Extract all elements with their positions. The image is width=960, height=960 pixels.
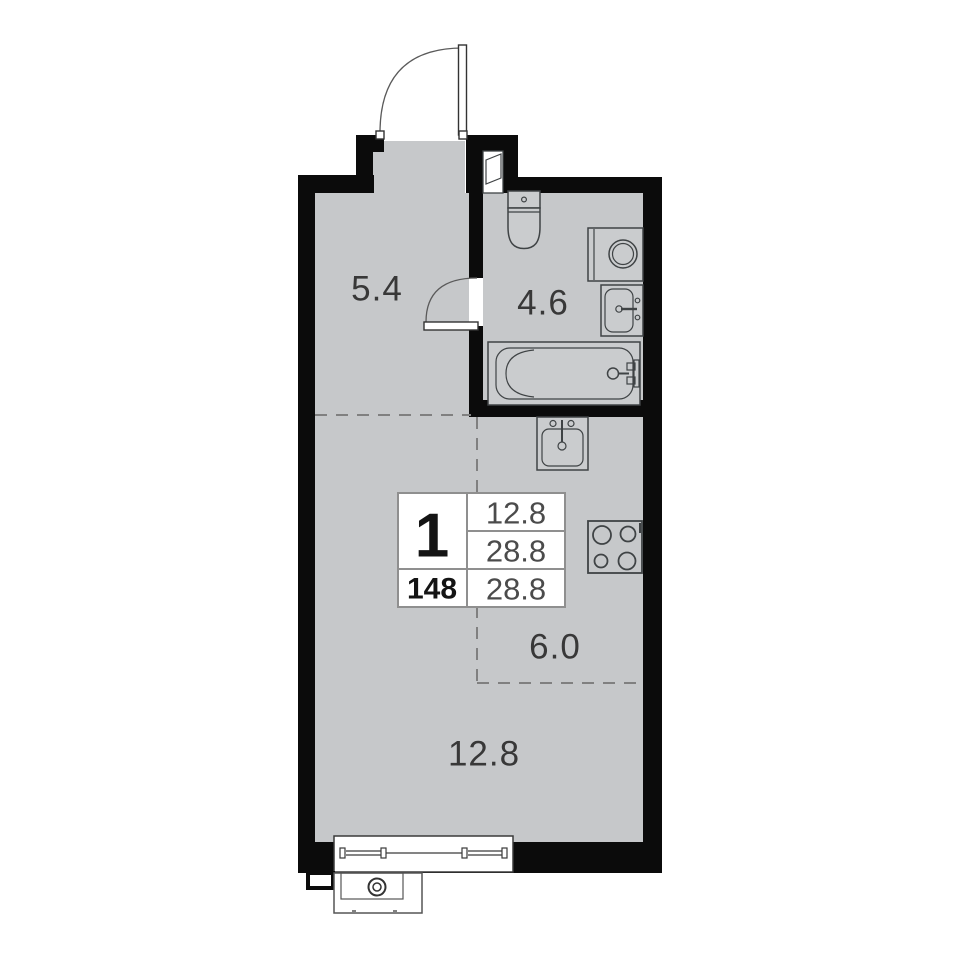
wall-bathroom-left-upper [469, 193, 483, 278]
washing-machine-icon [588, 228, 643, 281]
apartment-number: 148 [407, 573, 457, 606]
entrance-door-icon [376, 45, 467, 139]
info-area-row2: 28.8 [486, 534, 546, 569]
window-icon [334, 836, 513, 872]
vent-shaft-icon [483, 151, 503, 193]
floor-vestibule [373, 141, 465, 201]
bathtub-icon [488, 342, 640, 405]
info-area-row3: 28.8 [486, 572, 546, 607]
rooms-count: 1 [415, 502, 449, 571]
label-bathroom-area: 4.6 [517, 284, 569, 323]
toilet-icon [508, 191, 540, 249]
wall-right [643, 177, 662, 873]
info-area-row1: 12.8 [486, 496, 546, 531]
ac-unit-basket-icon [308, 873, 422, 913]
floor-plan-drawing: 1 148 12.8 28.8 28.8 5.4 4.6 6.0 12.8 [0, 0, 960, 960]
kitchen-sink-icon [537, 417, 588, 470]
info-card: 1 148 12.8 28.8 28.8 [398, 493, 565, 607]
label-living-area: 12.8 [448, 735, 520, 774]
label-hallway-area: 5.4 [351, 270, 403, 309]
wall-left [298, 175, 315, 872]
label-kitchen-area: 6.0 [529, 628, 581, 667]
bathroom-sink-icon [601, 285, 643, 336]
floor-plan: 1 148 12.8 28.8 28.8 5.4 4.6 6.0 12.8 [0, 0, 960, 960]
floor-living [315, 415, 643, 843]
